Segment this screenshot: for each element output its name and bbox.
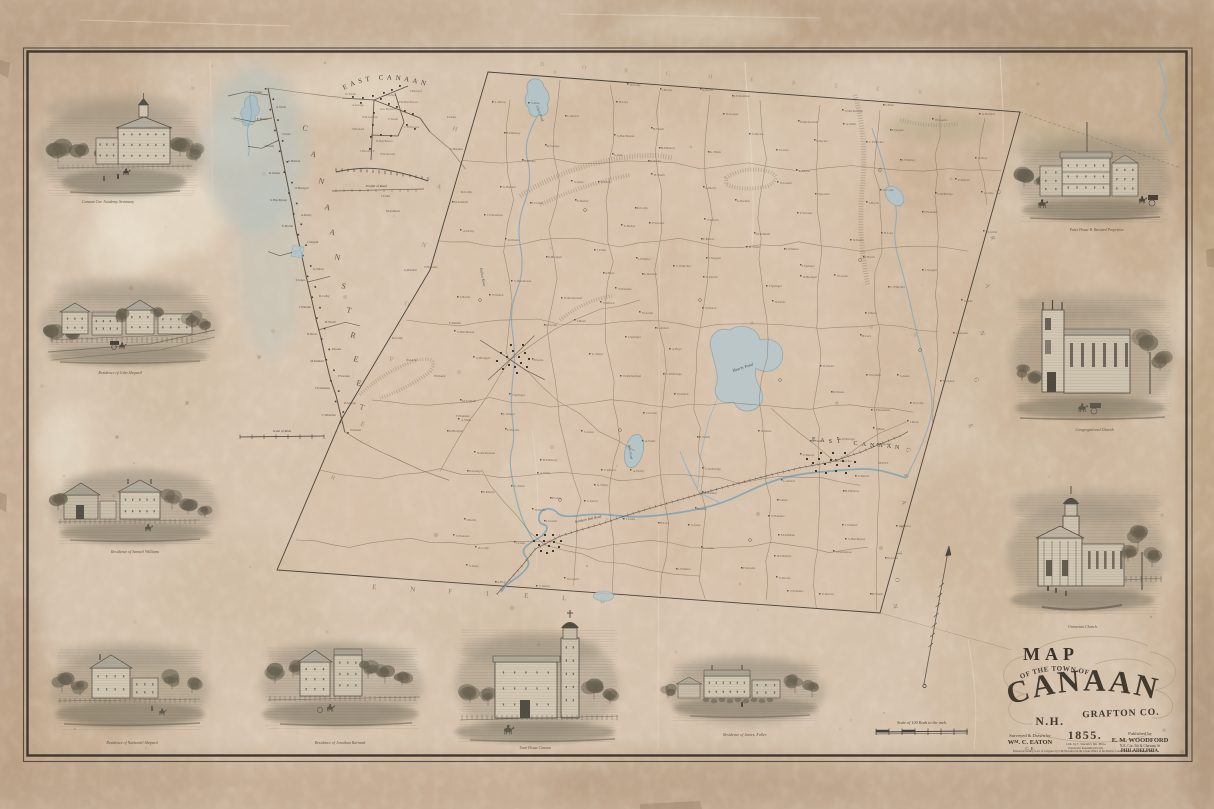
svg-text:S.Hutchinson: S.Hutchinson <box>457 330 475 334</box>
svg-text:M.Kimball: M.Kimball <box>386 209 400 213</box>
svg-text:H.Worth: H.Worth <box>749 245 760 249</box>
svg-text:J.Harris: J.Harris <box>869 201 880 205</box>
svg-text:T.Wilson: T.Wilson <box>603 301 615 305</box>
svg-text:G.Bartlett: G.Bartlett <box>288 159 300 163</box>
svg-text:S.Walbridge: S.Walbridge <box>937 192 953 196</box>
svg-text:S.Jones: S.Jones <box>469 564 479 568</box>
svg-text:F.Stevens: F.Stevens <box>652 221 665 225</box>
svg-text:G.Bartlett: G.Bartlett <box>737 199 750 203</box>
svg-text:Wm.Stevens: Wm.Stevens <box>380 152 396 156</box>
svg-text:J.Sargent: J.Sargent <box>307 240 319 244</box>
svg-text:A.Wells: A.Wells <box>812 439 823 443</box>
svg-text:H.Worth: H.Worth <box>872 592 883 596</box>
svg-text:T.Wilson: T.Wilson <box>707 218 719 222</box>
svg-text:S.Decato: S.Decato <box>816 139 828 143</box>
svg-text:A.Hoyt: A.Hoyt <box>605 271 615 275</box>
svg-text:E.Barber: E.Barber <box>703 237 715 241</box>
svg-text:G.Bartlett: G.Bartlett <box>450 147 463 151</box>
svg-text:D.Colby: D.Colby <box>913 401 924 405</box>
svg-text:J.Sargent: J.Sargent <box>956 331 968 335</box>
svg-text:Geo.Barnard: Geo.Barnard <box>380 107 396 111</box>
svg-text:B.Pillsbury: B.Pillsbury <box>661 146 676 150</box>
svg-text:E.Martin: E.Martin <box>282 224 294 228</box>
svg-text:Surveyed & Drawn by: Surveyed & Drawn by <box>1009 733 1051 738</box>
svg-text:A.George: A.George <box>352 103 364 107</box>
svg-text:DEPOT: DEPOT <box>878 461 888 465</box>
svg-text:A.Derby: A.Derby <box>702 88 713 92</box>
svg-text:W.Richardson: W.Richardson <box>564 296 582 300</box>
svg-text:W.Gould: W.Gould <box>780 181 792 185</box>
svg-text:D.George: D.George <box>469 469 482 473</box>
svg-text:J.Whittier: J.Whittier <box>902 158 916 162</box>
svg-text:G.Bartlett: G.Bartlett <box>404 268 417 272</box>
svg-text:D.Colby: D.Colby <box>392 336 403 340</box>
svg-text:J.Follansbee: J.Follansbee <box>836 550 852 554</box>
svg-text:H.Worth: H.Worth <box>653 127 664 131</box>
svg-text:C: C <box>666 71 670 77</box>
svg-text:MAP: MAP <box>1023 644 1079 664</box>
svg-text:A.Wells: A.Wells <box>846 122 857 126</box>
svg-text:C.Abbott: C.Abbott <box>783 479 795 483</box>
svg-text:E: E <box>524 592 529 600</box>
svg-text:H.Worth: H.Worth <box>325 320 336 324</box>
svg-text:Wm.Godfrey: Wm.Godfrey <box>362 115 378 119</box>
svg-text:A.Derby: A.Derby <box>301 213 312 217</box>
svg-text:D.Colby: D.Colby <box>883 188 894 192</box>
svg-text:J.Follansbee: J.Follansbee <box>315 386 331 390</box>
svg-text:C.Abbott: C.Abbott <box>567 114 579 118</box>
svg-text:E. M. WOODFORD: E. M. WOODFORD <box>1112 737 1169 744</box>
svg-text:R: R <box>918 90 922 96</box>
svg-text:J.Clark: J.Clark <box>984 191 994 195</box>
svg-text:J.Currier: J.Currier <box>532 201 544 205</box>
svg-text:A.Wells: A.Wells <box>461 418 472 422</box>
svg-text:J.Follansbee: J.Follansbee <box>734 94 750 98</box>
svg-text:J.Clark: J.Clark <box>597 248 607 252</box>
svg-text:M.Kimball: M.Kimball <box>462 399 476 403</box>
svg-text:E.Martin: E.Martin <box>958 178 970 182</box>
svg-text:J.Currier: J.Currier <box>546 323 558 327</box>
svg-text:W.Doten: W.Doten <box>677 392 689 396</box>
svg-text:J.Whittier: J.Whittier <box>678 567 692 571</box>
svg-text:D.George: D.George <box>547 144 560 148</box>
svg-text:O.Blodgett: O.Blodgett <box>476 356 490 360</box>
svg-text:Residence of John Shepard: Residence of John Shepard <box>97 370 142 375</box>
svg-text:J.Barnard Jr: J.Barnard Jr <box>360 149 375 153</box>
svg-text:S.Walbridge: S.Walbridge <box>666 372 682 376</box>
svg-text:L: L <box>562 594 567 602</box>
svg-text:A.Hoyt: A.Hoyt <box>497 580 507 584</box>
svg-text:T.Flanders: T.Flanders <box>771 514 785 518</box>
svg-text:S.Decato: S.Decato <box>752 132 764 136</box>
svg-text:G.Tilton: G.Tilton <box>514 484 525 488</box>
svg-text:N.Davis: N.Davis <box>601 180 612 184</box>
svg-text:N.Davis: N.Davis <box>853 238 864 242</box>
svg-text:Congregational Church.: Congregational Church. <box>1075 427 1114 432</box>
svg-text:J.Currier: J.Currier <box>646 411 658 415</box>
svg-text:D.Colby: D.Colby <box>630 83 641 87</box>
svg-text:J.Harris: J.Harris <box>460 295 471 299</box>
svg-text:S.Walbridge: S.Walbridge <box>839 437 855 441</box>
svg-text:S.Jones: S.Jones <box>574 180 584 184</box>
svg-text:Wm.Hutchinson: Wm.Hutchinson <box>398 100 418 104</box>
svg-text:F.Stevens: F.Stevens <box>800 211 813 215</box>
svg-text:G.Bartlett: G.Bartlett <box>982 112 995 116</box>
svg-text:E.Barber: E.Barber <box>257 117 268 121</box>
svg-text:C: C <box>854 441 858 447</box>
svg-text:D.Colby: D.Colby <box>478 546 489 550</box>
svg-text:S.Decato: S.Decato <box>779 576 791 580</box>
svg-text:A: A <box>862 442 867 448</box>
svg-text:J.Whittier: J.Whittier <box>786 247 800 251</box>
svg-text:J.Clark: J.Clark <box>447 115 457 119</box>
svg-text:T.Flanders: T.Flanders <box>424 265 438 269</box>
svg-text:S.Dole: S.Dole <box>531 101 540 105</box>
svg-text:Town House Canaan: Town House Canaan <box>519 746 551 750</box>
svg-text:J.Harris: J.Harris <box>662 88 673 92</box>
svg-text:I.Springer: I.Springer <box>512 393 526 397</box>
svg-text:D.Colby: D.Colby <box>319 294 330 298</box>
svg-text:O.Blodgett: O.Blodgett <box>295 186 309 190</box>
svg-text:M.Kimball: M.Kimball <box>781 533 795 537</box>
svg-text:S.Hutchinson: S.Hutchinson <box>848 537 866 541</box>
svg-text:O.Blodgett: O.Blodgett <box>449 429 463 433</box>
svg-text:B.Pillsbury: B.Pillsbury <box>543 458 558 462</box>
svg-text:S.Hutchinson: S.Hutchinson <box>270 198 287 202</box>
svg-text:E.Barber: E.Barber <box>624 224 636 228</box>
svg-text:D.George: D.George <box>726 112 739 116</box>
svg-text:J.Follansbee: J.Follansbee <box>874 408 890 412</box>
svg-text:J.Currier: J.Currier <box>703 546 715 550</box>
svg-text:R.Weeks: R.Weeks <box>508 238 520 242</box>
svg-text:N.Davis: N.Davis <box>775 300 786 304</box>
svg-text:J.Whittier: J.Whittier <box>845 523 859 527</box>
svg-text:I.Springer: I.Springer <box>628 335 642 339</box>
svg-text:E.Martin: E.Martin <box>449 321 461 325</box>
svg-text:H.Lary: H.Lary <box>884 231 894 235</box>
svg-text:J.Sargent: J.Sargent <box>709 256 721 260</box>
svg-text:L.Morse: L.Morse <box>799 169 810 173</box>
svg-text:H.Lary: H.Lary <box>862 334 872 338</box>
svg-text:Profile of Road: Profile of Road <box>365 184 387 188</box>
svg-text:J.Whittier: J.Whittier <box>638 257 652 261</box>
svg-text:G.Tilton: G.Tilton <box>313 267 324 271</box>
svg-text:S.Decato: S.Decato <box>524 159 536 163</box>
svg-text:J.Harris: J.Harris <box>865 255 876 259</box>
svg-text:B.Pillsbury: B.Pillsbury <box>506 131 521 135</box>
svg-text:F.Stevens: F.Stevens <box>507 428 520 432</box>
svg-text:J.Clark: J.Clark <box>516 541 526 545</box>
svg-text:S.Hutchinson: S.Hutchinson <box>617 134 635 138</box>
svg-text:Published by: Published by <box>1128 731 1153 736</box>
svg-text:J.Sargent: J.Sargent <box>892 128 904 132</box>
svg-text:W.Gould: W.Gould <box>935 118 947 122</box>
svg-text:W.Doten: W.Doten <box>705 306 717 310</box>
svg-text:C.Whitcher: C.Whitcher <box>890 285 906 289</box>
svg-text:E.Barber: E.Barber <box>577 199 589 203</box>
svg-text:D.Hutchinson: D.Hutchinson <box>376 139 393 143</box>
svg-text:S.Dole: S.Dole <box>614 153 623 157</box>
svg-text:A.Hoyt: A.Hoyt <box>978 156 988 160</box>
svg-text:H.Lary: H.Lary <box>660 521 670 525</box>
svg-text:S.Dole: S.Dole <box>779 498 788 502</box>
svg-text:B.Pillsbury: B.Pillsbury <box>845 489 860 493</box>
svg-text:Unitarian Church.: Unitarian Church. <box>1068 624 1098 629</box>
svg-text:A.Hoyt: A.Hoyt <box>672 347 682 351</box>
svg-text:A.Wells: A.Wells <box>276 105 287 109</box>
svg-text:J.Clark: J.Clark <box>253 90 262 94</box>
svg-text:N.Davis: N.Davis <box>761 429 772 433</box>
svg-text:J.Barnard: J.Barnard <box>410 89 422 93</box>
svg-text:J.Harris: J.Harris <box>264 144 275 148</box>
svg-text:H.Worth: H.Worth <box>654 173 665 177</box>
svg-text:F.Stevens: F.Stevens <box>743 566 756 570</box>
svg-text:T.Flanders: T.Flanders <box>790 589 804 593</box>
svg-text:A.Wells: A.Wells <box>645 439 656 443</box>
svg-text:1855.: 1855. <box>1068 728 1103 742</box>
svg-text:T.Flanders: T.Flanders <box>456 414 470 418</box>
svg-text:F.Stevens: F.Stevens <box>338 374 351 378</box>
svg-text:Scale of 100 Rods to the inch.: Scale of 100 Rods to the inch. <box>897 720 947 725</box>
svg-text:M.Kimball: M.Kimball <box>454 200 468 204</box>
svg-text:W.Arvin: W.Arvin <box>986 230 997 234</box>
svg-text:R.Weeks: R.Weeks <box>650 159 662 163</box>
svg-text:D.Colby: D.Colby <box>461 190 472 194</box>
svg-text:T.Wilson: T.Wilson <box>899 524 911 528</box>
svg-text:G.Tilton: G.Tilton <box>592 352 603 356</box>
svg-text:A.Derby: A.Derby <box>705 186 716 190</box>
svg-text:S.Dole: S.Dole <box>282 132 291 136</box>
svg-text:J.Bean: J.Bean <box>910 420 919 424</box>
svg-text:L.Morse: L.Morse <box>539 584 550 588</box>
svg-text:N: N <box>895 445 900 451</box>
svg-text:W.Richardson: W.Richardson <box>623 374 641 378</box>
svg-text:G.Bartlett: G.Bartlett <box>704 491 717 495</box>
svg-text:P.Gates: P.Gates <box>779 148 789 152</box>
svg-text:E.Martin: E.Martin <box>822 592 834 596</box>
svg-text:W.Tustin: W.Tustin <box>345 92 356 96</box>
svg-text:P.Gates: P.Gates <box>332 347 342 351</box>
svg-text:D.Colby: D.Colby <box>637 206 648 210</box>
svg-text:W.Richardson: W.Richardson <box>800 120 818 124</box>
svg-text:A.Derby: A.Derby <box>463 229 474 233</box>
svg-text:P.Gates: P.Gates <box>534 358 544 362</box>
svg-text:L.Morse: L.Morse <box>495 100 506 104</box>
svg-text:Fates House B. Barnard Prop: Fates House B. Barnard Proprietor. <box>1069 228 1125 232</box>
svg-text:L.Morse: L.Morse <box>587 499 598 503</box>
svg-text:E.Barber: E.Barber <box>803 453 815 457</box>
svg-text:E.Martin: E.Martin <box>483 490 495 494</box>
svg-text:E: E <box>372 583 377 591</box>
svg-text:C.Whitcher: C.Whitcher <box>676 264 692 268</box>
svg-text:D.George: D.George <box>879 442 892 446</box>
svg-text:F: F <box>448 587 453 595</box>
svg-text:N.Davis: N.Davis <box>535 508 546 512</box>
svg-text:S: S <box>792 80 796 86</box>
svg-text:R.Weeks: R.Weeks <box>833 390 845 394</box>
svg-text:S: S <box>829 439 832 445</box>
svg-text:A.Derby: A.Derby <box>633 469 644 473</box>
svg-text:J.Follansbee: J.Follansbee <box>487 213 503 217</box>
svg-text:O.Blodgett: O.Blodgett <box>548 255 562 259</box>
svg-text:J.Bean: J.Bean <box>876 427 885 431</box>
svg-text:W.Doten: W.Doten <box>492 293 504 297</box>
svg-text:S.Dole: S.Dole <box>885 103 894 107</box>
svg-text:W.Richardson: W.Richardson <box>845 109 863 113</box>
svg-text:S.Jones: S.Jones <box>296 278 306 282</box>
svg-text:S.Dole: S.Dole <box>964 299 973 303</box>
svg-text:J.Whittier: J.Whittier <box>299 305 311 309</box>
svg-text:M.Kimball: M.Kimball <box>310 359 324 363</box>
svg-text:C.Whitcher: C.Whitcher <box>837 459 853 463</box>
svg-text:S.Barnard: S.Barnard <box>352 127 365 131</box>
svg-text:N.E. Cor. 5th & Chestnut St: N.E. Cor. 5th & Chestnut St <box>1120 744 1160 748</box>
svg-text:J.Harris: J.Harris <box>466 518 477 522</box>
svg-text:G.Bartlett: G.Bartlett <box>503 185 516 189</box>
svg-text:M.Kimball: M.Kimball <box>756 232 770 236</box>
svg-text:W.Arvin: W.Arvin <box>406 358 417 362</box>
svg-text:C.H.Stevens: C.H.Stevens <box>404 125 420 129</box>
svg-text:Scale of Rods: Scale of Rods <box>273 429 292 433</box>
svg-text:E.Martin: E.Martin <box>706 275 718 279</box>
svg-text:T.Tustin: T.Tustin <box>388 117 398 121</box>
svg-text:J.Bean: J.Bean <box>577 319 586 323</box>
svg-text:T.Flanders: T.Flanders <box>618 287 632 291</box>
svg-text:N.Davis: N.Davis <box>307 332 318 336</box>
svg-text:W.Arvin: W.Arvin <box>887 556 898 560</box>
svg-text:Residence of Nathaniel Shepard: Residence of Nathaniel Shepard <box>105 740 158 745</box>
svg-text:C.Whitcher: C.Whitcher <box>322 413 336 417</box>
svg-text:T.Flanders: T.Flanders <box>456 534 470 538</box>
svg-text:S.Walbridge: S.Walbridge <box>705 467 721 471</box>
svg-text:N.H.: N.H. <box>1036 716 1065 728</box>
svg-text:I.Springer: I.Springer <box>802 264 816 268</box>
svg-text:R.Weeks: R.Weeks <box>823 364 835 368</box>
svg-text:W.Gould: W.Gould <box>818 192 830 196</box>
svg-text:J.Currier: J.Currier <box>546 519 558 523</box>
svg-text:W.Arvin: W.Arvin <box>837 274 848 278</box>
svg-text:I.Springer: I.Springer <box>769 284 783 288</box>
svg-text:Entered according to act of Co: Entered according to act of Congress by … <box>1013 750 1154 753</box>
svg-text:S.Jones: S.Jones <box>691 523 701 527</box>
svg-text:Residence of Jonathan Barnard: Residence of Jonathan Barnard <box>314 740 367 745</box>
svg-text:Residence of Samuel Williams: Residence of Samuel Williams <box>110 549 160 554</box>
svg-text:W.Arvin: W.Arvin <box>642 311 653 315</box>
svg-text:W.Doten: W.Doten <box>943 379 955 383</box>
svg-text:E.Barber: E.Barber <box>858 474 870 478</box>
svg-text:H.Lary: H.Lary <box>619 100 629 104</box>
svg-text:J.Clark: J.Clark <box>381 194 391 198</box>
svg-text:H.Worth: H.Worth <box>699 435 710 439</box>
svg-text:N: N <box>870 443 875 449</box>
svg-text:Canaan Cor. Academy Seminary: Canaan Cor. Academy Seminary <box>82 199 134 204</box>
svg-text:P.Gates: P.Gates <box>552 496 562 500</box>
svg-text:C.Whitcher: C.Whitcher <box>869 140 885 144</box>
svg-text:R: R <box>624 68 628 74</box>
svg-text:J.Sargent: J.Sargent <box>925 268 937 272</box>
svg-text:W.Richardson: W.Richardson <box>477 451 495 455</box>
svg-text:W.Gould: W.Gould <box>869 373 881 377</box>
svg-text:S.Jones: S.Jones <box>584 430 594 434</box>
svg-text:W.Doten: W.Doten <box>434 374 446 378</box>
svg-text:N: N <box>410 585 416 593</box>
svg-text:G.Tilton: G.Tilton <box>597 483 608 487</box>
svg-text:J.Follett: J.Follett <box>386 93 396 97</box>
svg-text:C.Abbott: C.Abbott <box>503 412 515 416</box>
svg-text:G.Bartlett: G.Bartlett <box>644 272 657 276</box>
svg-text:J.Bean: J.Bean <box>868 311 877 315</box>
svg-text:R.Weeks: R.Weeks <box>269 171 281 175</box>
svg-text:S.Hutchinson: S.Hutchinson <box>514 279 532 283</box>
svg-text:W.Gould: W.Gould <box>567 577 579 581</box>
svg-text:S.Jones: S.Jones <box>900 374 910 378</box>
svg-text:T.Flanders: T.Flanders <box>924 210 938 214</box>
svg-text:B.Pillsbury: B.Pillsbury <box>777 554 792 558</box>
svg-text:C.Abbott: C.Abbott <box>657 326 669 330</box>
svg-text:J.Clark: J.Clark <box>626 517 636 521</box>
svg-text:P.Gates: P.Gates <box>697 507 707 511</box>
svg-text:O.Blodgett: O.Blodgett <box>803 275 817 279</box>
svg-text:T.Wilson: T.Wilson <box>604 468 616 472</box>
svg-text:G.Tilton: G.Tilton <box>710 150 721 154</box>
svg-text:A.Wells: A.Wells <box>540 471 551 475</box>
